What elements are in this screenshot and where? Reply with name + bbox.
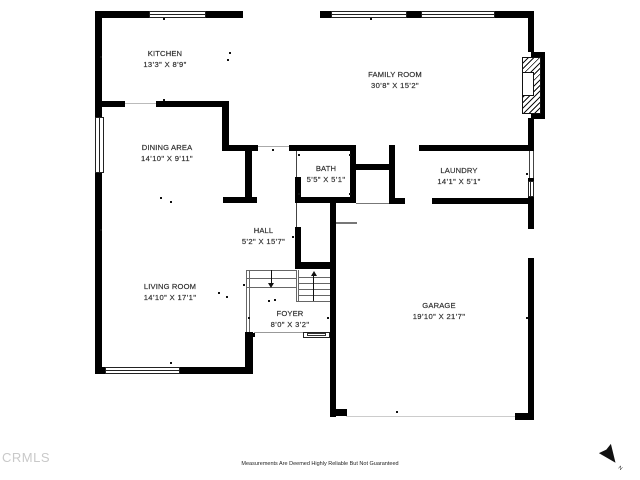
svg-text:N: N	[617, 465, 624, 472]
